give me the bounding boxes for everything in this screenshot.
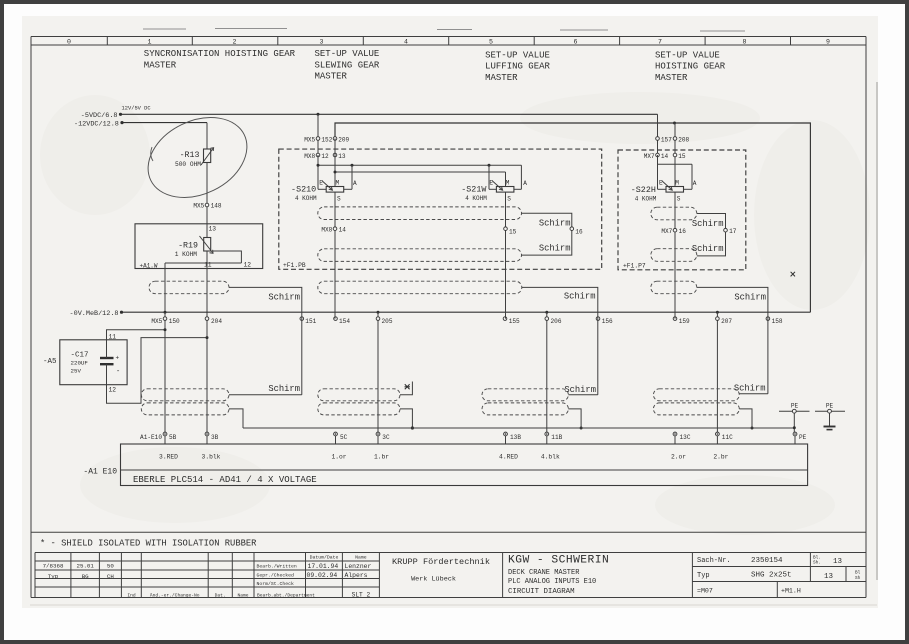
svg-text:12V/5V DC: 12V/5V DC	[122, 105, 151, 111]
svg-text:A: A	[353, 180, 357, 187]
svg-text:PLC ANALOG INPUTS E10: PLC ANALOG INPUTS E10	[508, 578, 596, 586]
svg-text:Sh: Sh	[855, 576, 861, 581]
svg-text:3C: 3C	[382, 434, 390, 441]
svg-text:MX8: MX8	[304, 153, 315, 160]
svg-text:1: 1	[148, 39, 152, 46]
svg-text:14: 14	[339, 227, 347, 234]
svg-text:Werk Lübeck: Werk Lübeck	[411, 576, 456, 584]
svg-text:CIRCUIT DIAGRAM: CIRCUIT DIAGRAM	[508, 588, 575, 596]
svg-text:7/8368: 7/8368	[43, 563, 64, 570]
svg-text:MASTER: MASTER	[655, 73, 688, 83]
svg-text:11B: 11B	[551, 434, 562, 441]
svg-text:Schirm: Schirm	[564, 291, 596, 301]
svg-text:MASTER: MASTER	[485, 73, 518, 83]
svg-text:12: 12	[244, 261, 252, 268]
svg-text:A1-E10: A1-E10	[140, 434, 162, 441]
svg-text:E: E	[319, 180, 323, 187]
svg-text:152: 152	[321, 136, 332, 143]
svg-text:Sh.: Sh.	[813, 561, 821, 566]
svg-text:Gepr./Checked: Gepr./Checked	[257, 573, 295, 579]
svg-text:MX7: MX7	[661, 228, 672, 235]
svg-text:Schirm: Schirm	[692, 244, 724, 254]
svg-text:Schirm: Schirm	[692, 219, 724, 229]
svg-text:Schirm: Schirm	[734, 293, 766, 303]
svg-text:151: 151	[305, 318, 316, 325]
svg-text:Bearb./Written: Bearb./Written	[257, 564, 297, 570]
svg-text:HOISTING GEAR: HOISTING GEAR	[655, 62, 726, 72]
svg-text:204: 204	[211, 318, 222, 325]
svg-text:BG: BG	[82, 573, 89, 580]
svg-text:4 KOHM: 4 KOHM	[465, 195, 487, 202]
svg-text:-: -	[116, 368, 120, 376]
svg-text:PE: PE	[799, 434, 807, 441]
svg-text:7: 7	[658, 39, 662, 46]
svg-text:8: 8	[743, 39, 747, 46]
svg-text:Name: Name	[237, 592, 248, 598]
svg-text:PE: PE	[791, 402, 799, 409]
svg-text:PE: PE	[826, 402, 834, 409]
svg-text:3.RED: 3.RED	[159, 453, 178, 460]
svg-text:Typ: Typ	[697, 572, 710, 580]
svg-text:-A1 E10: -A1 E10	[83, 468, 117, 477]
svg-text:Schirm: Schirm	[564, 385, 596, 395]
svg-text:MX5: MX5	[304, 136, 315, 143]
svg-text:2: 2	[233, 39, 237, 46]
svg-text:15: 15	[509, 228, 517, 235]
svg-text:SET-UP VALUE: SET-UP VALUE	[485, 50, 550, 60]
svg-text:4.RED: 4.RED	[499, 453, 518, 460]
svg-text:SLEWING GEAR: SLEWING GEAR	[315, 60, 380, 70]
svg-text:E: E	[659, 180, 663, 187]
svg-text:S: S	[677, 195, 681, 202]
svg-text:12: 12	[321, 153, 329, 160]
svg-text:11: 11	[204, 261, 212, 268]
svg-text:157: 157	[661, 136, 672, 143]
svg-text:12: 12	[109, 387, 117, 394]
svg-text:-S21W: -S21W	[461, 185, 487, 195]
svg-text:6: 6	[574, 39, 578, 46]
svg-text:SLT 2: SLT 2	[352, 592, 371, 599]
svg-text:Schirm: Schirm	[539, 219, 571, 229]
svg-text:-5VDC/6.8: -5VDC/6.8	[81, 112, 118, 120]
svg-text:5: 5	[489, 39, 493, 46]
svg-text:S: S	[337, 195, 341, 202]
svg-text:3: 3	[320, 39, 324, 46]
svg-text:Schirm: Schirm	[268, 293, 300, 303]
svg-text:Ind: Ind	[127, 592, 136, 598]
svg-text:9: 9	[826, 39, 830, 46]
svg-text:206: 206	[551, 318, 562, 325]
svg-text:-R13: -R13	[180, 151, 200, 160]
svg-text:208: 208	[678, 136, 689, 143]
svg-text:MX8: MX8	[321, 227, 332, 234]
svg-text:2.br: 2.br	[713, 453, 728, 460]
svg-text:1.or: 1.or	[331, 453, 346, 460]
svg-text:13C: 13C	[680, 434, 691, 441]
svg-text:156: 156	[602, 318, 613, 325]
svg-text:13B: 13B	[510, 434, 521, 441]
svg-text:148: 148	[211, 203, 222, 210]
svg-text:Lenzner: Lenzner	[345, 563, 372, 570]
svg-text:M: M	[336, 180, 340, 187]
svg-text:2350154: 2350154	[751, 557, 783, 565]
svg-text:-12VDC/12.8: -12VDC/12.8	[74, 120, 119, 128]
svg-text:2.or: 2.or	[671, 453, 686, 460]
svg-text:SET-UP VALUE: SET-UP VALUE	[315, 49, 380, 59]
svg-text:A: A	[523, 180, 527, 187]
svg-text:MASTER: MASTER	[144, 60, 177, 70]
svg-text:Schirm: Schirm	[268, 384, 300, 394]
svg-text:-R19: -R19	[178, 242, 198, 251]
svg-text:EBERLE PLC514 - AD41 / 4 X VOL: EBERLE PLC514 - AD41 / 4 X VOLTAGE	[133, 475, 317, 485]
svg-text:158: 158	[772, 318, 783, 325]
svg-text:Alpers: Alpers	[345, 572, 368, 579]
svg-text:Schirm: Schirm	[539, 243, 571, 253]
svg-text:13: 13	[824, 573, 834, 581]
svg-text:11C: 11C	[722, 434, 733, 441]
svg-text:Bl: Bl	[855, 571, 861, 576]
svg-text:M: M	[675, 180, 679, 187]
svg-text:155: 155	[509, 318, 520, 325]
svg-text:1.br: 1.br	[374, 453, 389, 460]
svg-text:5C: 5C	[340, 434, 348, 441]
svg-text:E: E	[489, 180, 493, 187]
svg-text:Schirm: Schirm	[734, 383, 766, 393]
svg-text:=M07: =M07	[697, 587, 713, 594]
svg-text:Datum/Date: Datum/Date	[310, 554, 339, 560]
svg-text:MX5: MX5	[193, 203, 204, 210]
svg-text:+: +	[116, 355, 120, 362]
svg-text:209: 209	[338, 136, 349, 143]
svg-text:154: 154	[339, 318, 350, 325]
svg-text:16: 16	[575, 228, 583, 235]
svg-text:09.02.94: 09.02.94	[307, 572, 338, 579]
svg-text:S: S	[507, 195, 511, 202]
svg-text:SET-UP VALUE: SET-UP VALUE	[655, 50, 720, 60]
svg-text:CH: CH	[107, 573, 114, 580]
svg-text:13: 13	[338, 153, 346, 160]
svg-text:KGW - SCHWERIN: KGW - SCHWERIN	[508, 555, 609, 567]
svg-text:207: 207	[721, 318, 732, 325]
svg-text:3B: 3B	[211, 434, 219, 441]
svg-text:150: 150	[169, 318, 180, 325]
svg-text:-A5: -A5	[43, 358, 57, 366]
svg-text:4 KOHM: 4 KOHM	[635, 195, 657, 202]
svg-text:220UF: 220UF	[71, 360, 89, 367]
svg-text:4 KOHM: 4 KOHM	[295, 195, 317, 202]
svg-text:1 KOHM: 1 KOHM	[175, 251, 198, 258]
svg-text:159: 159	[679, 318, 690, 325]
svg-text:SHG 2x25t: SHG 2x25t	[751, 572, 792, 580]
svg-text:Dat.: Dat.	[215, 592, 226, 598]
svg-text:13: 13	[209, 226, 217, 233]
svg-text:4: 4	[404, 39, 408, 46]
svg-text:MX5: MX5	[151, 318, 162, 325]
svg-text:SYNCRONISATION HOISTING GEAR: SYNCRONISATION HOISTING GEAR	[144, 49, 296, 59]
svg-text:+F1.PB: +F1.PB	[283, 262, 306, 269]
svg-text:17: 17	[729, 228, 737, 235]
svg-text:-S22H: -S22H	[631, 185, 656, 195]
svg-text:* - SHIELD ISOLATED WITH ISOLA: * - SHIELD ISOLATED WITH ISOLATION RUBBE…	[40, 539, 257, 549]
svg-text:Typ: Typ	[48, 573, 59, 580]
svg-text:A: A	[693, 180, 697, 187]
svg-text:Bearb.abt./Department: Bearb.abt./Department	[257, 592, 315, 598]
svg-text:Sach-Nr.: Sach-Nr.	[697, 557, 731, 565]
svg-text:205: 205	[382, 318, 393, 325]
svg-text:Änd.-er./Change-No: Änd.-er./Change-No	[150, 591, 200, 598]
svg-text:11: 11	[109, 333, 117, 340]
svg-text:-C17: -C17	[71, 352, 89, 360]
svg-text:14: 14	[661, 153, 669, 160]
svg-text:Name: Name	[355, 554, 367, 560]
svg-text:+A1.W: +A1.W	[140, 262, 158, 269]
svg-text:M: M	[506, 180, 510, 187]
svg-text:4.blk: 4.blk	[541, 453, 560, 460]
svg-text:+M1.H: +M1.H	[781, 587, 801, 594]
svg-text:500 OHM: 500 OHM	[175, 161, 201, 168]
svg-text:50: 50	[107, 563, 114, 570]
svg-text:5B: 5B	[169, 434, 177, 441]
svg-text:+F1.P7: +F1.P7	[623, 262, 646, 269]
svg-text:-S210: -S210	[291, 185, 316, 195]
svg-text:DECK CRANE MASTER: DECK CRANE MASTER	[508, 569, 580, 577]
svg-text:15: 15	[678, 153, 686, 160]
svg-text:MX7: MX7	[644, 153, 655, 160]
svg-text:17.01.94: 17.01.94	[308, 563, 339, 570]
svg-text:0: 0	[67, 39, 71, 46]
svg-text:13: 13	[833, 558, 843, 566]
svg-text:MASTER: MASTER	[315, 72, 348, 82]
svg-text:LUFFING GEAR: LUFFING GEAR	[485, 62, 550, 72]
svg-text:3.blk: 3.blk	[202, 453, 221, 460]
svg-text:16: 16	[679, 228, 687, 235]
svg-text:KRUPP Fördertechnik: KRUPP Fördertechnik	[392, 557, 490, 567]
svg-text:Norm/St.Check: Norm/St.Check	[257, 581, 295, 587]
svg-text:25V: 25V	[71, 368, 82, 375]
svg-text:25.01: 25.01	[76, 563, 94, 570]
svg-text:-0V.MeB/12.8: -0V.MeB/12.8	[70, 310, 119, 318]
